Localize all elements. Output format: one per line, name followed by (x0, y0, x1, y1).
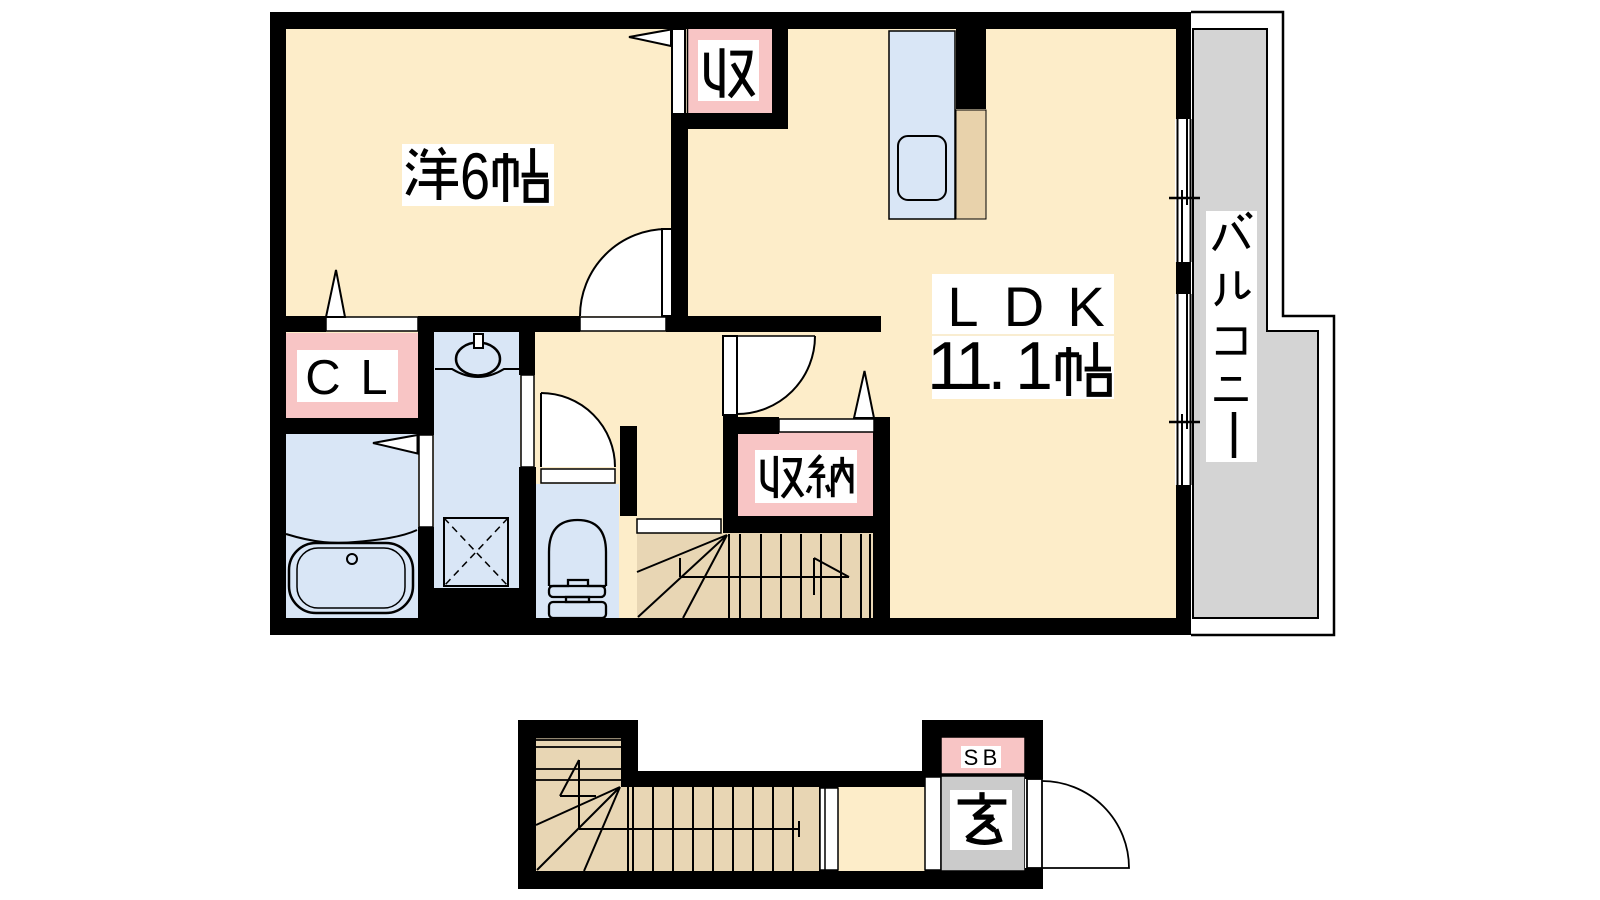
svg-text:K: K (1067, 275, 1104, 338)
svg-text:6: 6 (460, 139, 490, 213)
svg-text:L: L (360, 351, 387, 405)
svg-text:1: 1 (1015, 328, 1053, 404)
svg-text:C: C (305, 351, 340, 405)
svg-text:S: S (964, 745, 979, 770)
svg-text:B: B (983, 745, 998, 770)
svg-text:.: . (988, 328, 1007, 404)
